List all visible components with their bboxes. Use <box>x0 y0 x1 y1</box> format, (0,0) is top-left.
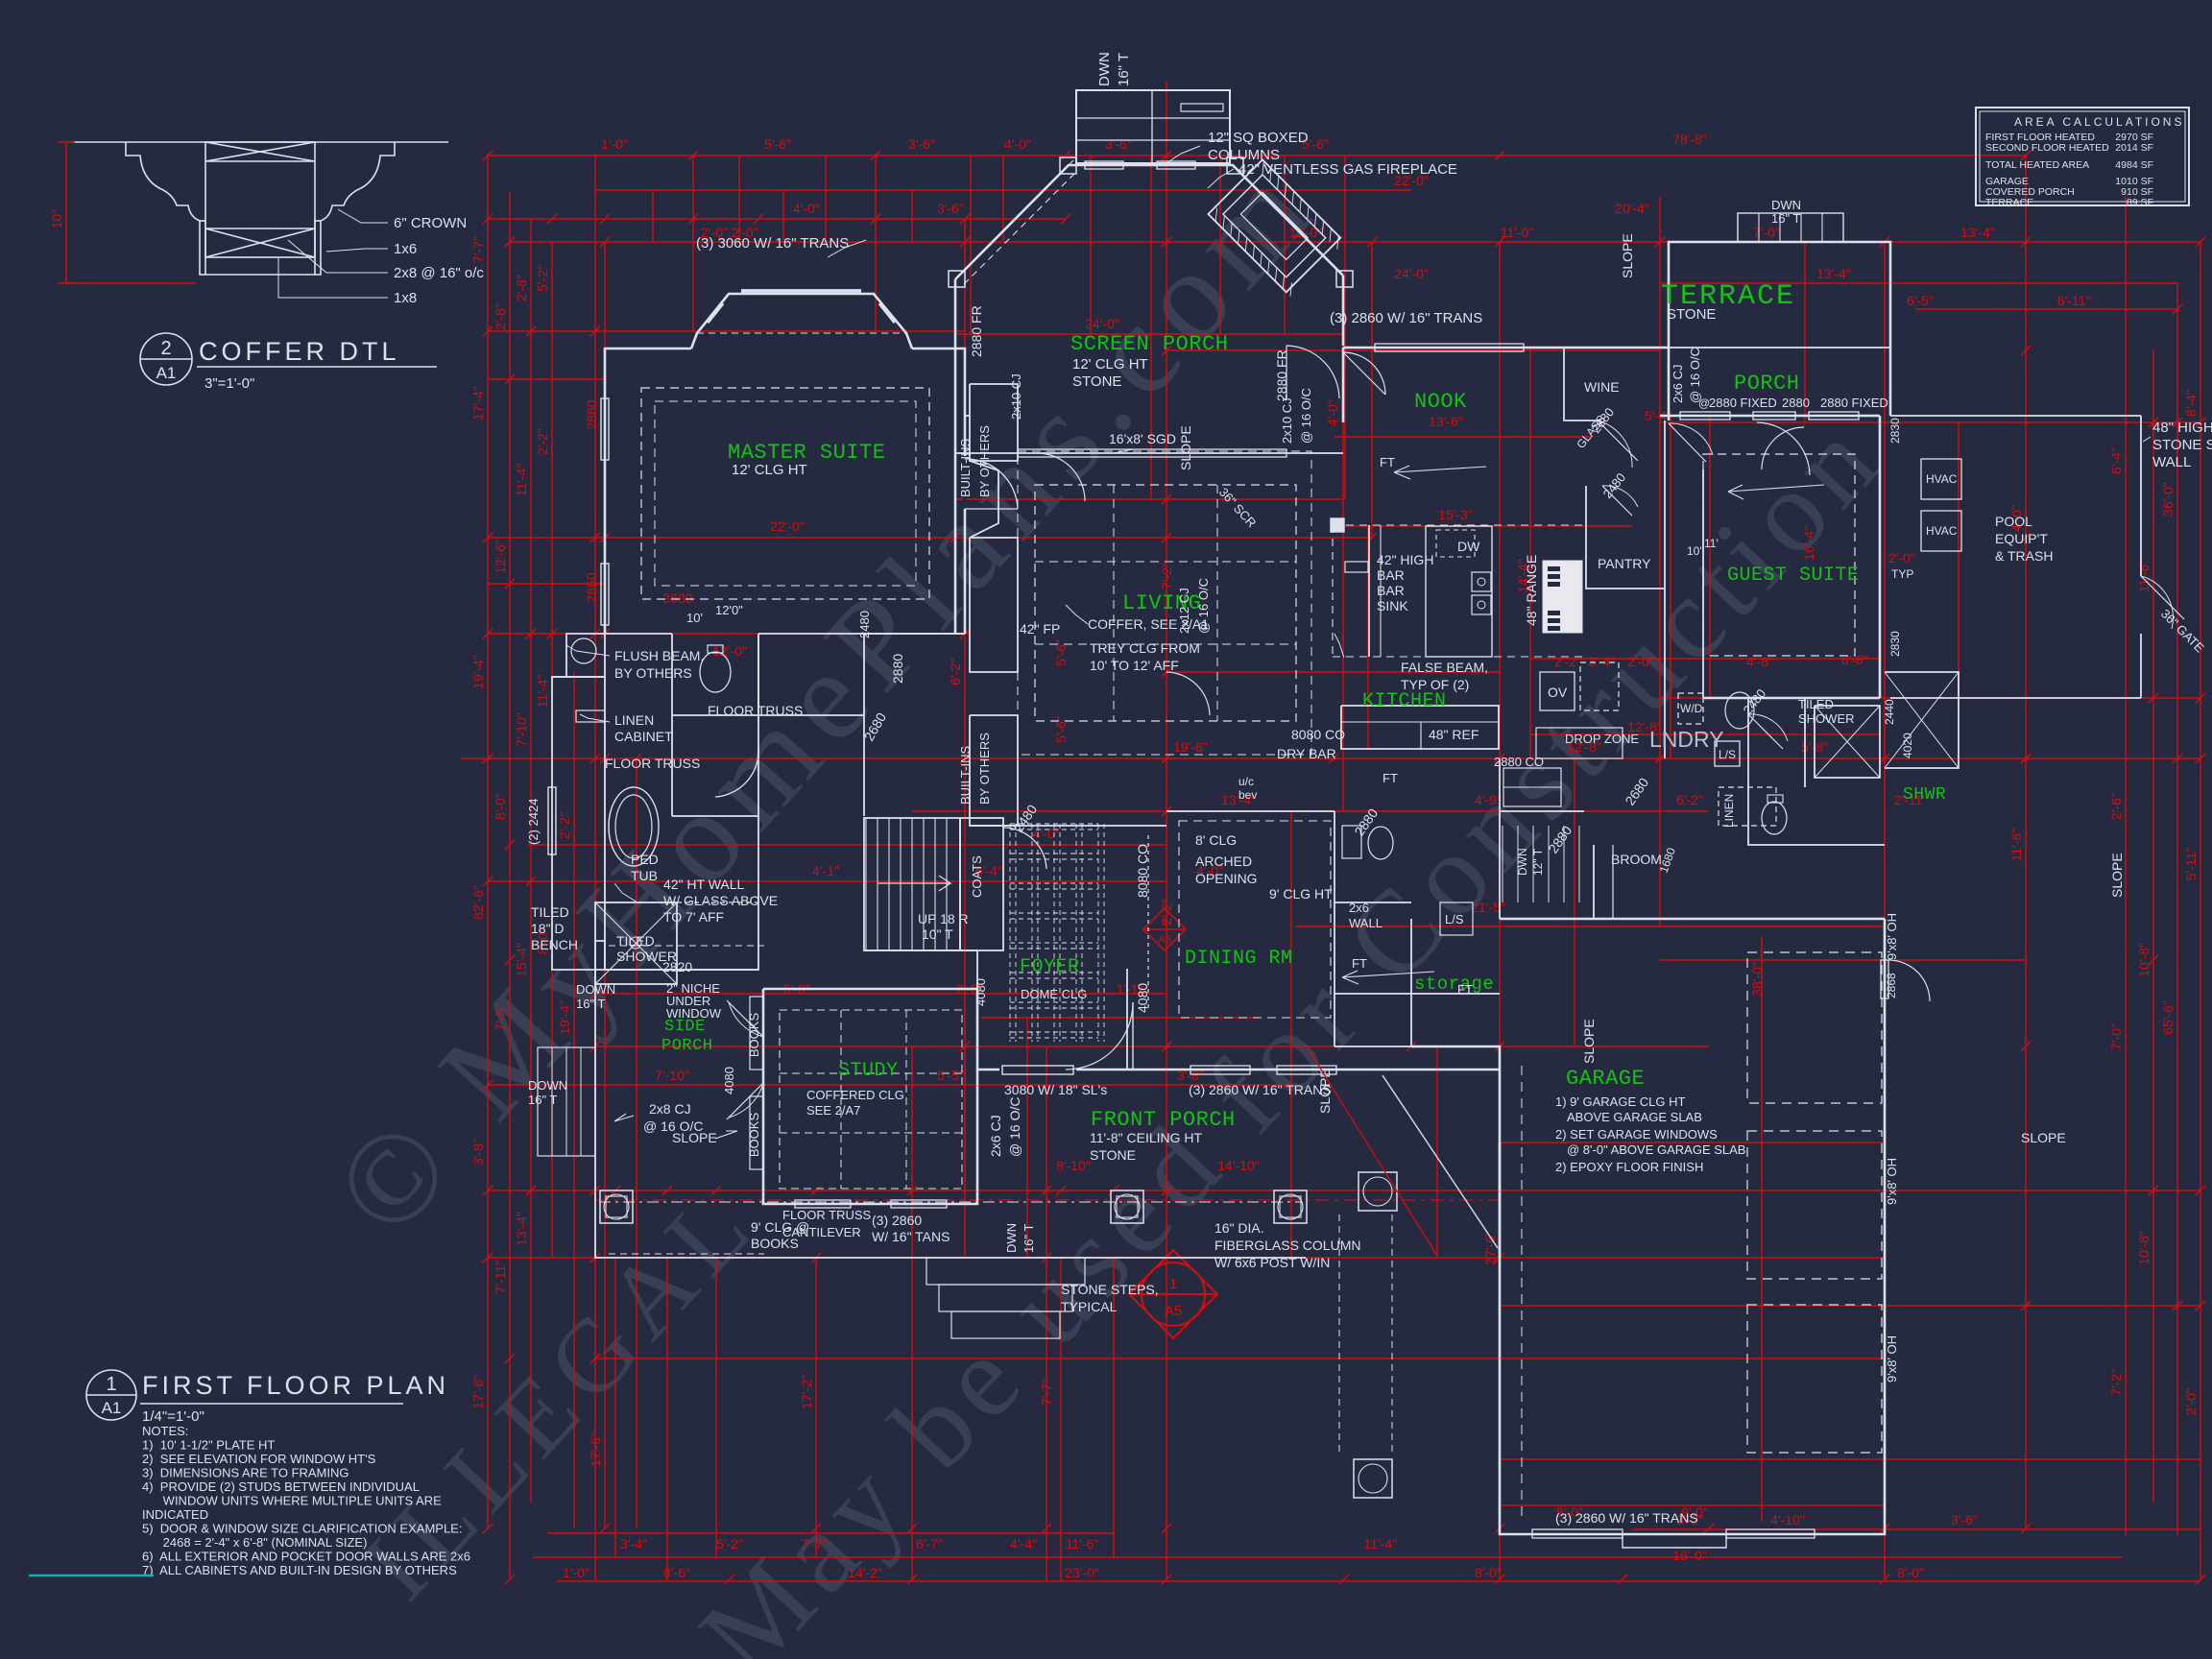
svg-text:8'-4": 8'-4" <box>2183 390 2199 417</box>
svg-text:INDICATED: INDICATED <box>142 1507 208 1522</box>
svg-text:SLOPE: SLOPE <box>1581 1019 1597 1064</box>
svg-text:1) 9' GARAGE CLG HT: 1) 9' GARAGE CLG HT <box>1555 1094 1685 1109</box>
svg-text:6'-11": 6'-11" <box>2057 293 2091 308</box>
svg-text:16" T: 16" T <box>1022 1224 1036 1253</box>
svg-text:1) 10' 1-1/2" PLATE HT: 1) 10' 1-1/2" PLATE HT <box>142 1438 275 1453</box>
svg-text:CABINET: CABINET <box>614 729 673 744</box>
svg-text:18" D: 18" D <box>531 921 565 936</box>
svg-text:3) DIMENSIONS ARE TO FRAMING: 3) DIMENSIONS ARE TO FRAMING <box>142 1466 349 1480</box>
svg-text:4020: 4020 <box>1901 733 1914 758</box>
svg-text:2'-8": 2'-8" <box>493 303 508 330</box>
svg-text:A1: A1 <box>156 364 177 382</box>
svg-text:7'-11": 7'-11" <box>493 1261 508 1294</box>
svg-text:5'-6": 5'-6" <box>1053 639 1069 666</box>
svg-text:3080 W/ 18" SL's: 3080 W/ 18" SL's <box>1004 1082 1107 1097</box>
svg-text:SECOND FLOOR HEATED: SECOND FLOOR HEATED <box>1985 142 2109 154</box>
svg-text:10": 10" <box>49 209 64 229</box>
svg-text:24'-0": 24'-0" <box>1394 266 1429 281</box>
svg-text:PORCH: PORCH <box>661 1037 713 1055</box>
svg-text:SLOPE: SLOPE <box>1620 233 1635 278</box>
svg-text:L/S: L/S <box>1445 912 1464 926</box>
svg-text:16" T: 16" T <box>1116 53 1132 86</box>
svg-text:1'-0": 1'-0" <box>563 1565 589 1580</box>
svg-text:42" FP: 42" FP <box>1020 621 1060 637</box>
svg-text:2x10 CJ: 2x10 CJ <box>1280 397 1294 444</box>
svg-text:42" HIGH: 42" HIGH <box>1377 552 1433 567</box>
svg-text:1: 1 <box>106 1374 116 1395</box>
svg-text:16'x8' SGD: 16'x8' SGD <box>1109 431 1176 446</box>
svg-text:8'-6": 8'-6" <box>663 1565 690 1580</box>
svg-text:1x6: 1x6 <box>394 241 417 257</box>
svg-text:COFFERED CLG: COFFERED CLG <box>806 1088 904 1102</box>
svg-text:FT: FT <box>1382 771 1398 785</box>
svg-text:FT: FT <box>1457 982 1473 997</box>
svg-text:8'-0": 8'-0" <box>1475 1565 1502 1580</box>
svg-text:3"=1'-0": 3"=1'-0" <box>204 375 254 392</box>
svg-text:5'-6": 5'-6" <box>1053 716 1069 743</box>
svg-text:DWN: DWN <box>1004 1223 1019 1253</box>
svg-text:2880 FR: 2880 FR <box>969 305 984 357</box>
svg-text:12'0": 12'0" <box>715 603 743 617</box>
svg-text:4984 SF: 4984 SF <box>2115 159 2153 171</box>
svg-text:2830: 2830 <box>1888 631 1902 657</box>
svg-text:11'-6": 11'-6" <box>2136 560 2152 593</box>
svg-text:42" HT WALL: 42" HT WALL <box>663 877 745 892</box>
svg-text:5'-6": 5'-6" <box>764 136 791 152</box>
svg-text:7'-2": 7'-2" <box>1159 563 1174 589</box>
svg-text:2: 2 <box>160 338 171 359</box>
svg-text:NOTES:: NOTES: <box>142 1424 188 1438</box>
svg-text:(3) 2860 W/ 16" TRANS: (3) 2860 W/ 16" TRANS <box>1189 1082 1332 1097</box>
svg-text:BUILT-INS: BUILT-INS <box>958 439 973 497</box>
svg-text:13'-4": 13'-4" <box>1960 225 1995 240</box>
svg-text:PANTRY: PANTRY <box>1598 556 1651 571</box>
svg-text:SLOPE: SLOPE <box>1178 425 1193 470</box>
svg-text:DOWN: DOWN <box>576 982 615 997</box>
svg-text:3'-4": 3'-4" <box>620 1536 647 1551</box>
svg-text:FLUSH BEAM,: FLUSH BEAM, <box>614 648 704 663</box>
svg-text:AREA CALCULATIONS: AREA CALCULATIONS <box>2014 115 2184 129</box>
svg-text:7'-10": 7'-10" <box>514 712 529 747</box>
svg-text:SLOPE: SLOPE <box>672 1130 717 1145</box>
svg-text:2880: 2880 <box>890 654 905 684</box>
svg-text:(3) 2860 W/ 16" TRANS: (3) 2860 W/ 16" TRANS <box>1330 310 1482 326</box>
svg-text:bev: bev <box>1238 788 1257 802</box>
svg-text:BOOKS: BOOKS <box>747 1113 761 1158</box>
svg-text:11'-4": 11'-4" <box>514 464 529 497</box>
svg-text:TOTAL HEATED AREA: TOTAL HEATED AREA <box>1985 159 2089 171</box>
svg-text:2880 CO: 2880 CO <box>1494 755 1544 769</box>
svg-text:6'-7": 6'-7" <box>916 1536 943 1551</box>
svg-text:82'-6": 82'-6" <box>470 885 486 920</box>
svg-text:A1: A1 <box>102 1399 122 1417</box>
svg-text:TYPICAL: TYPICAL <box>1061 1299 1118 1314</box>
svg-text:65'-6": 65'-6" <box>2160 1000 2176 1035</box>
svg-text:11'-6": 11'-6" <box>1066 1536 1099 1551</box>
svg-text:2'-8": 2'-8" <box>514 275 529 301</box>
svg-text:HVAC: HVAC <box>1926 524 1958 538</box>
svg-text:2'-0": 2'-0" <box>1888 550 1915 565</box>
svg-text:(3) 2860: (3) 2860 <box>872 1213 922 1228</box>
svg-text:7'-0": 7'-0" <box>1753 225 1780 240</box>
svg-text:10'-8": 10'-8" <box>2136 943 2152 977</box>
svg-text:10' TO 12' AFF: 10' TO 12' AFF <box>1090 658 1179 673</box>
svg-text:12" T: 12" T <box>1531 848 1545 876</box>
svg-text:ARCHED: ARCHED <box>1195 854 1252 869</box>
svg-text:4: 4 <box>1162 918 1167 929</box>
svg-text:DRY BAR: DRY BAR <box>1277 746 1336 761</box>
svg-text:(2) 2424: (2) 2424 <box>526 799 541 845</box>
svg-text:4'-10": 4'-10" <box>1770 1512 1805 1527</box>
svg-text:ABOVE GARAGE SLAB: ABOVE GARAGE SLAB <box>1567 1110 1702 1124</box>
svg-text:2014 SF: 2014 SF <box>2115 142 2153 154</box>
svg-text:& TRASH: & TRASH <box>1995 548 2053 564</box>
svg-text:7'-7": 7'-7" <box>1039 1379 1054 1406</box>
svg-text:42" VENTLESS GAS FIREPLACE: 42" VENTLESS GAS FIREPLACE <box>1238 161 1457 178</box>
svg-text:17'-2": 17'-2" <box>799 1375 814 1409</box>
svg-text:4) PROVIDE (2) STUDS BETWEEN: 4) PROVIDE (2) STUDS BETWEEN INDIVIDUAL <box>142 1479 420 1494</box>
svg-text:A5: A5 <box>1165 1303 1182 1319</box>
svg-text:STONE: STONE <box>1667 306 1716 323</box>
svg-text:14'-10": 14'-10" <box>1217 1158 1259 1173</box>
svg-text:8'-10": 8'-10" <box>1056 1158 1091 1173</box>
svg-text:FOYER: FOYER <box>1020 956 1080 978</box>
svg-text:4'-0": 4'-0" <box>1325 399 1340 426</box>
svg-text:KITCHEN: KITCHEN <box>1362 690 1447 712</box>
svg-text:11'-6": 11'-6" <box>2008 829 2024 862</box>
svg-text:2860: 2860 <box>584 399 599 429</box>
svg-text:3'-8": 3'-8" <box>470 1139 486 1166</box>
svg-text:89 SF: 89 SF <box>2127 197 2153 208</box>
svg-text:FALSE BEAM,: FALSE BEAM, <box>1401 660 1488 675</box>
svg-text:4080: 4080 <box>974 978 988 1006</box>
svg-text:2440: 2440 <box>1883 699 1896 725</box>
svg-text:COATS: COATS <box>970 855 984 898</box>
svg-text:FLOOR TRUSS: FLOOR TRUSS <box>708 703 803 718</box>
svg-text:FRONT PORCH: FRONT PORCH <box>1091 1108 1236 1132</box>
svg-text:TYP OF (2): TYP OF (2) <box>1401 677 1469 692</box>
svg-text:14'-2": 14'-2" <box>848 1565 882 1580</box>
svg-text:10" T: 10" T <box>922 926 953 942</box>
svg-text:BENCH: BENCH <box>531 937 578 952</box>
svg-text:STONE STEPS,: STONE STEPS, <box>1061 1282 1159 1297</box>
svg-text:9'x8' OH: 9'x8' OH <box>1885 913 1899 960</box>
svg-text:A5: A5 <box>1158 934 1170 946</box>
svg-text:17'-6": 17'-6" <box>470 1375 486 1409</box>
svg-text:16" DIA.: 16" DIA. <box>1214 1220 1264 1236</box>
svg-text:22'-0": 22'-0" <box>770 518 805 534</box>
svg-text:20'-4": 20'-4" <box>1615 201 1649 216</box>
svg-text:(3) 3060 W/ 16" TRANS: (3) 3060 W/ 16" TRANS <box>696 235 849 252</box>
svg-text:SINK: SINK <box>1377 598 1408 613</box>
svg-text:@ 16 O/C: @ 16 O/C <box>1007 1097 1022 1157</box>
svg-text:BROOM: BROOM <box>1611 852 1662 867</box>
svg-text:DOWN: DOWN <box>528 1078 567 1093</box>
svg-text:5'-2": 5'-2" <box>535 265 550 292</box>
svg-text:TREY CLG FROM: TREY CLG FROM <box>1090 640 1200 656</box>
svg-text:FIBERGLASS COLUMN: FIBERGLASS COLUMN <box>1214 1238 1360 1253</box>
svg-text:OPENING: OPENING <box>1195 871 1258 886</box>
svg-text:STONE SCREEN: STONE SCREEN <box>2152 437 2212 453</box>
svg-text:15'-3": 15'-3" <box>1438 507 1473 522</box>
svg-text:WINDOW UNITS WHERE MULTIPLE UN: WINDOW UNITS WHERE MULTIPLE UNITS ARE <box>142 1494 442 1508</box>
svg-text:16'-4": 16'-4" <box>1801 526 1816 561</box>
svg-text:BAR: BAR <box>1377 583 1405 598</box>
svg-text:16" T: 16" T <box>576 997 605 1011</box>
svg-text:3680: 3680 <box>662 590 692 606</box>
svg-text:SEE 2/A7: SEE 2/A7 <box>806 1103 860 1118</box>
svg-text:W/ 16" TANS: W/ 16" TANS <box>872 1229 950 1244</box>
svg-text:8'-0": 8'-0" <box>1897 1565 1924 1580</box>
svg-text:4'-1": 4'-1" <box>812 863 839 878</box>
svg-text:3'-6": 3'-6" <box>908 136 935 152</box>
svg-text:7'-2": 7'-2" <box>2108 1369 2124 1396</box>
svg-text:24'-0": 24'-0" <box>1085 316 1119 331</box>
svg-text:15'-4": 15'-4" <box>514 943 529 977</box>
svg-text:OV: OV <box>1548 685 1568 700</box>
svg-text:2'-0": 2'-0" <box>1627 654 1654 669</box>
svg-text:2x8 @ 16" o/c: 2x8 @ 16" o/c <box>394 265 484 281</box>
svg-text:WALL: WALL <box>1349 916 1382 930</box>
svg-text:@ 16 O/C: @ 16 O/C <box>1688 348 1702 403</box>
svg-text:2'-2": 2'-2" <box>535 428 550 455</box>
svg-text:23'-0": 23'-0" <box>1065 1565 1099 1580</box>
svg-text:9' CLG @: 9' CLG @ <box>751 1219 809 1235</box>
svg-text:W/D: W/D <box>1680 702 1703 715</box>
svg-text:3'-6": 3'-6" <box>1951 1512 1978 1527</box>
svg-text:DWN: DWN <box>1096 52 1113 86</box>
svg-text:TUB: TUB <box>631 868 658 883</box>
svg-text:BOOKS: BOOKS <box>751 1236 799 1251</box>
svg-text:48" RANGE: 48" RANGE <box>1524 555 1539 626</box>
svg-text:2'-6": 2'-6" <box>2108 793 2124 820</box>
svg-text:PORCH: PORCH <box>1734 372 1800 396</box>
svg-text:19'-4": 19'-4" <box>470 655 486 689</box>
svg-text:6'-4": 6'-4" <box>2108 447 2124 474</box>
svg-text:7'-5": 7'-5" <box>493 1004 508 1031</box>
svg-text:48" HIGH: 48" HIGH <box>2152 420 2212 436</box>
svg-text:1'-0": 1'-0" <box>601 136 628 152</box>
svg-text:2) SEE ELEVATION FOR WINDOW H: 2) SEE ELEVATION FOR WINDOW HT'S <box>142 1452 376 1466</box>
svg-text:10': 10' <box>1687 544 1702 558</box>
svg-text:UP 18 R: UP 18 R <box>918 911 969 926</box>
svg-text:2880 FIXED: 2880 FIXED <box>1709 396 1777 410</box>
svg-text:LINEN: LINEN <box>614 712 654 728</box>
svg-text:10': 10' <box>686 611 703 625</box>
svg-text:4'-0": 4'-0" <box>1033 826 1060 841</box>
svg-text:STONE: STONE <box>1072 373 1121 390</box>
svg-text:4080: 4080 <box>722 1067 736 1094</box>
svg-text:HVAC: HVAC <box>1926 472 1958 486</box>
svg-text:8080 CO: 8080 CO <box>1291 727 1345 742</box>
svg-text:2x10 CJ: 2x10 CJ <box>1009 373 1023 420</box>
svg-text:2468 = 2'-4" x 6'-8" (NOMINAL: 2468 = 2'-4" x 6'-8" (NOMINAL SIZE) <box>142 1535 367 1550</box>
svg-text:2x12 CJ: 2x12 CJ <box>1177 588 1191 634</box>
svg-text:WALL: WALL <box>2152 454 2191 470</box>
svg-text:TERRACE: TERRACE <box>1985 197 2033 208</box>
svg-text:7'-7": 7'-7" <box>801 1536 828 1551</box>
svg-text:2880 FIXED: 2880 FIXED <box>1820 396 1888 410</box>
svg-text:LINEN: LINEN <box>1722 794 1736 828</box>
svg-text:DWN: DWN <box>1516 848 1529 876</box>
svg-text:BY OTHERS: BY OTHERS <box>614 665 692 681</box>
svg-text:GUEST SUITE: GUEST SUITE <box>1727 565 1860 587</box>
svg-text:3'-4": 3'-4" <box>1588 654 1615 669</box>
svg-text:TYP: TYP <box>1891 567 1913 581</box>
svg-text:13'-4": 13'-4" <box>514 1212 529 1246</box>
svg-text:2x6: 2x6 <box>1349 901 1369 915</box>
svg-text:SLOPE: SLOPE <box>2021 1130 2066 1145</box>
svg-text:16'-0": 16'-0" <box>1672 1548 1707 1563</box>
svg-text:3'-6": 3'-6" <box>937 201 964 216</box>
svg-text:5'-2": 5'-2" <box>716 1536 743 1551</box>
svg-text:DW: DW <box>1457 539 1480 554</box>
svg-text:STONE: STONE <box>1090 1147 1136 1163</box>
svg-text:9'x8' OH: 9'x8' OH <box>1885 1158 1899 1205</box>
svg-text:FT: FT <box>1352 956 1367 971</box>
svg-text:1/4"=1'-0": 1/4"=1'-0" <box>142 1408 204 1425</box>
svg-text:6'-2": 6'-2" <box>1676 792 1703 807</box>
svg-text:11'-8" CEILING HT: 11'-8" CEILING HT <box>1090 1130 1203 1145</box>
svg-text:storage: storage <box>1414 974 1494 995</box>
svg-text:7'-7": 7'-7" <box>470 236 486 263</box>
svg-text:DINING RM: DINING RM <box>1185 948 1293 970</box>
svg-text:BUILT-INS: BUILT-INS <box>958 746 973 805</box>
svg-text:17'-6": 17'-6" <box>588 1432 603 1467</box>
svg-text:(3) 2860 W/ 16" TRANS: (3) 2860 W/ 16" TRANS <box>1555 1510 1698 1526</box>
svg-text:2) EPOXY FLOOR FINISH: 2) EPOXY FLOOR FINISH <box>1555 1160 1703 1174</box>
svg-text:2x8 CJ: 2x8 CJ <box>649 1101 691 1117</box>
svg-text:TO 7' AFF: TO 7' AFF <box>663 909 724 925</box>
svg-text:STUDY: STUDY <box>838 1060 899 1082</box>
svg-text:NOOK: NOOK <box>1414 390 1467 414</box>
svg-text:1: 1 <box>1169 1276 1177 1292</box>
svg-text:5) DOOR & WINDOW SIZE CLARIFI: 5) DOOR & WINDOW SIZE CLARIFICATION EXAM… <box>142 1522 462 1536</box>
svg-text:38'-0": 38'-0" <box>1749 962 1765 997</box>
svg-text:48" REF: 48" REF <box>1429 727 1479 742</box>
svg-text:4'-0": 4'-0" <box>1004 136 1031 152</box>
svg-text:17'-4": 17'-4" <box>470 386 486 421</box>
svg-text:W/ 6x6 POST W/IN: W/ 6x6 POST W/IN <box>1214 1255 1330 1270</box>
svg-text:19'-6": 19'-6" <box>1173 739 1208 755</box>
svg-text:WINDOW: WINDOW <box>666 1006 722 1021</box>
svg-text:4'-4": 4'-4" <box>1010 1536 1037 1551</box>
svg-text:DOME CLG: DOME CLG <box>1021 987 1087 1001</box>
svg-text:16" T: 16" T <box>1771 211 1800 226</box>
svg-text:BY OTHERS: BY OTHERS <box>977 425 992 497</box>
svg-text:11'-4": 11'-4" <box>1364 1536 1398 1551</box>
svg-text:SHWR: SHWR <box>1903 785 1946 805</box>
svg-text:TILED: TILED <box>616 933 655 949</box>
svg-text:78'-8": 78'-8" <box>1672 132 1707 147</box>
svg-text:5'-11": 5'-11" <box>2183 848 2199 881</box>
svg-text:9'x8' OH: 9'x8' OH <box>1885 1335 1899 1382</box>
svg-text:BAR: BAR <box>1377 567 1405 583</box>
svg-text:LNDRY: LNDRY <box>1649 727 1724 752</box>
svg-text:2480: 2480 <box>857 611 872 638</box>
svg-text:FT: FT <box>1380 455 1395 469</box>
svg-text:36'-0": 36'-0" <box>2160 482 2176 517</box>
svg-text:13'-4": 13'-4" <box>1816 266 1851 281</box>
svg-text:19'-4": 19'-4" <box>557 1000 572 1035</box>
svg-text:DROP ZONE: DROP ZONE <box>1565 732 1639 746</box>
svg-text:2820: 2820 <box>662 959 692 974</box>
svg-text:4080: 4080 <box>1135 983 1150 1013</box>
svg-text:@ 16 O/C: @ 16 O/C <box>1196 578 1211 634</box>
svg-text:16" T: 16" T <box>528 1093 557 1107</box>
svg-text:SHOWER: SHOWER <box>1798 711 1855 726</box>
svg-text:BY OTHERS: BY OTHERS <box>977 733 992 805</box>
svg-text:2'-2": 2'-2" <box>557 812 572 839</box>
svg-text:POOL: POOL <box>1995 514 2032 529</box>
svg-text:EQUIP'T: EQUIP'T <box>1995 531 2048 546</box>
svg-text:12' CLG HT: 12' CLG HT <box>1072 356 1148 373</box>
svg-text:8'-0": 8'-0" <box>493 793 508 820</box>
svg-text:3'-6": 3'-6" <box>1105 136 1132 152</box>
svg-text:9' CLG HT: 9' CLG HT <box>1269 886 1333 902</box>
svg-text:13'-6": 13'-6" <box>1429 414 1463 429</box>
svg-text:7'-0": 7'-0" <box>2108 1023 2124 1050</box>
svg-text:12'-6": 12'-6" <box>493 540 508 574</box>
svg-text:2868: 2868 <box>1885 973 1898 998</box>
svg-text:COFFER DTL: COFFER DTL <box>199 337 400 366</box>
svg-text:2x6 CJ: 2x6 CJ <box>988 1115 1003 1157</box>
svg-text:FIRST FLOOR PLAN: FIRST FLOOR PLAN <box>142 1371 449 1400</box>
svg-text:2'-0": 2'-0" <box>2183 1388 2199 1415</box>
svg-text:2830: 2830 <box>1888 418 1902 444</box>
svg-text:W/ GLASS ABOVE: W/ GLASS ABOVE <box>663 893 778 908</box>
svg-text:7'-10": 7'-10" <box>655 1068 689 1083</box>
svg-text:7) ALL CABINETS AND BUILT-IN: 7) ALL CABINETS AND BUILT-IN DESIGN BY O… <box>142 1563 457 1577</box>
svg-text:1x8: 1x8 <box>394 290 417 306</box>
svg-text:BOOKS: BOOKS <box>747 1013 761 1058</box>
svg-text:2x6 CJ: 2x6 CJ <box>1671 365 1685 403</box>
svg-text:2) SET GARAGE WINDOWS: 2) SET GARAGE WINDOWS <box>1555 1127 1718 1142</box>
svg-text:10'-8": 10'-8" <box>2136 1231 2152 1265</box>
svg-text:2'-2": 2'-2" <box>1554 654 1581 669</box>
svg-text:@ 8'-0" ABOVE GARAGE SLAB: @ 8'-0" ABOVE GARAGE SLAB <box>1567 1142 1745 1157</box>
svg-text:4'-9": 4'-9" <box>1475 792 1502 807</box>
svg-text:8080 CO: 8080 CO <box>1135 844 1150 898</box>
svg-text:GARAGE: GARAGE <box>1566 1067 1645 1091</box>
svg-text:11'-4": 11'-4" <box>535 675 550 709</box>
svg-text:SLOPE: SLOPE <box>2109 853 2125 898</box>
svg-text:12' CLG HT: 12' CLG HT <box>732 462 807 478</box>
svg-text:11': 11' <box>1704 537 1719 550</box>
svg-text:TILED: TILED <box>531 904 569 920</box>
svg-text:PED: PED <box>631 852 659 867</box>
svg-text:SCREEN PORCH: SCREEN PORCH <box>1070 332 1228 356</box>
svg-text:DWN: DWN <box>1771 198 1801 212</box>
svg-text:TILED: TILED <box>1798 697 1834 711</box>
svg-text:4'-0": 4'-0" <box>793 201 820 216</box>
svg-text:2880 FR: 2880 FR <box>1274 349 1289 401</box>
svg-text:WINE: WINE <box>1584 379 1620 395</box>
svg-text:8' CLG: 8' CLG <box>1195 832 1237 848</box>
svg-text:2880: 2880 <box>1782 396 1810 410</box>
svg-text:5'-5": 5'-5" <box>937 1068 964 1083</box>
svg-text:12" SQ BOXED: 12" SQ BOXED <box>1208 130 1309 146</box>
svg-text:6) ALL EXTERIOR AND POCKET DO: 6) ALL EXTERIOR AND POCKET DOOR WALLS AR… <box>142 1550 470 1564</box>
svg-text:6" CROWN: 6" CROWN <box>394 215 467 231</box>
svg-text:11'-0": 11'-0" <box>1501 225 1534 240</box>
svg-text:6'-2": 6'-2" <box>948 659 963 685</box>
svg-text:@ 16 O/C: @ 16 O/C <box>1299 388 1313 444</box>
svg-text:2860: 2860 <box>584 572 599 602</box>
svg-text:FLOOR TRUSS: FLOOR TRUSS <box>605 756 700 771</box>
svg-text:u/c: u/c <box>1238 775 1254 788</box>
svg-text:6'-5": 6'-5" <box>1907 293 1934 308</box>
